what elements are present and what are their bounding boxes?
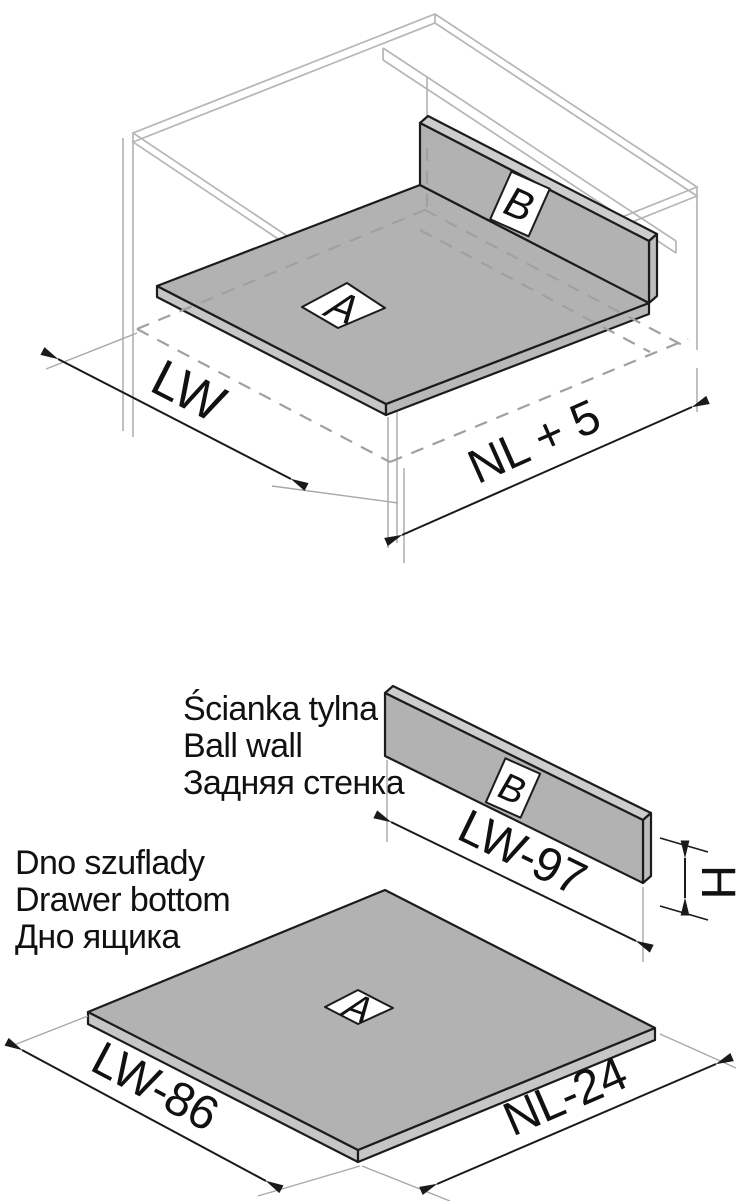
parts-view: Ścianka tylna Ball wall Задняя стенка B … xyxy=(14,686,740,1201)
dim-label-h: H xyxy=(691,865,740,899)
cabinet-front-corner-edges xyxy=(388,412,397,548)
drawer-bottom-caption-en: Drawer bottom xyxy=(15,881,230,919)
drawer-bottom-caption-pl: Dno szuflady xyxy=(15,844,205,882)
drawer-dimension-diagram: A B LW NL + 5 xyxy=(0,0,740,1201)
dimension-h: H xyxy=(660,838,740,920)
back-wall-caption: Ścianka tylna Ball wall Задняя стенка xyxy=(183,689,405,802)
dim-label-nl-plus-5: NL + 5 xyxy=(460,390,608,495)
drawer-bottom-caption-ru: Дно ящика xyxy=(15,918,180,956)
back-wall-caption-ru: Задняя стенка xyxy=(183,764,405,802)
back-wall-caption-pl: Ścianka tylna xyxy=(183,689,378,728)
assembly-view: A B LW NL + 5 xyxy=(46,14,697,563)
diagram-page: A B LW NL + 5 xyxy=(0,0,740,1201)
drawer-bottom-caption: Dno szuflady Drawer bottom Дно ящика xyxy=(15,844,230,956)
back-wall-caption-en: Ball wall xyxy=(183,727,302,765)
dimension-nl-plus-5: NL + 5 xyxy=(402,390,692,563)
dim-label-lw: LW xyxy=(142,349,234,434)
